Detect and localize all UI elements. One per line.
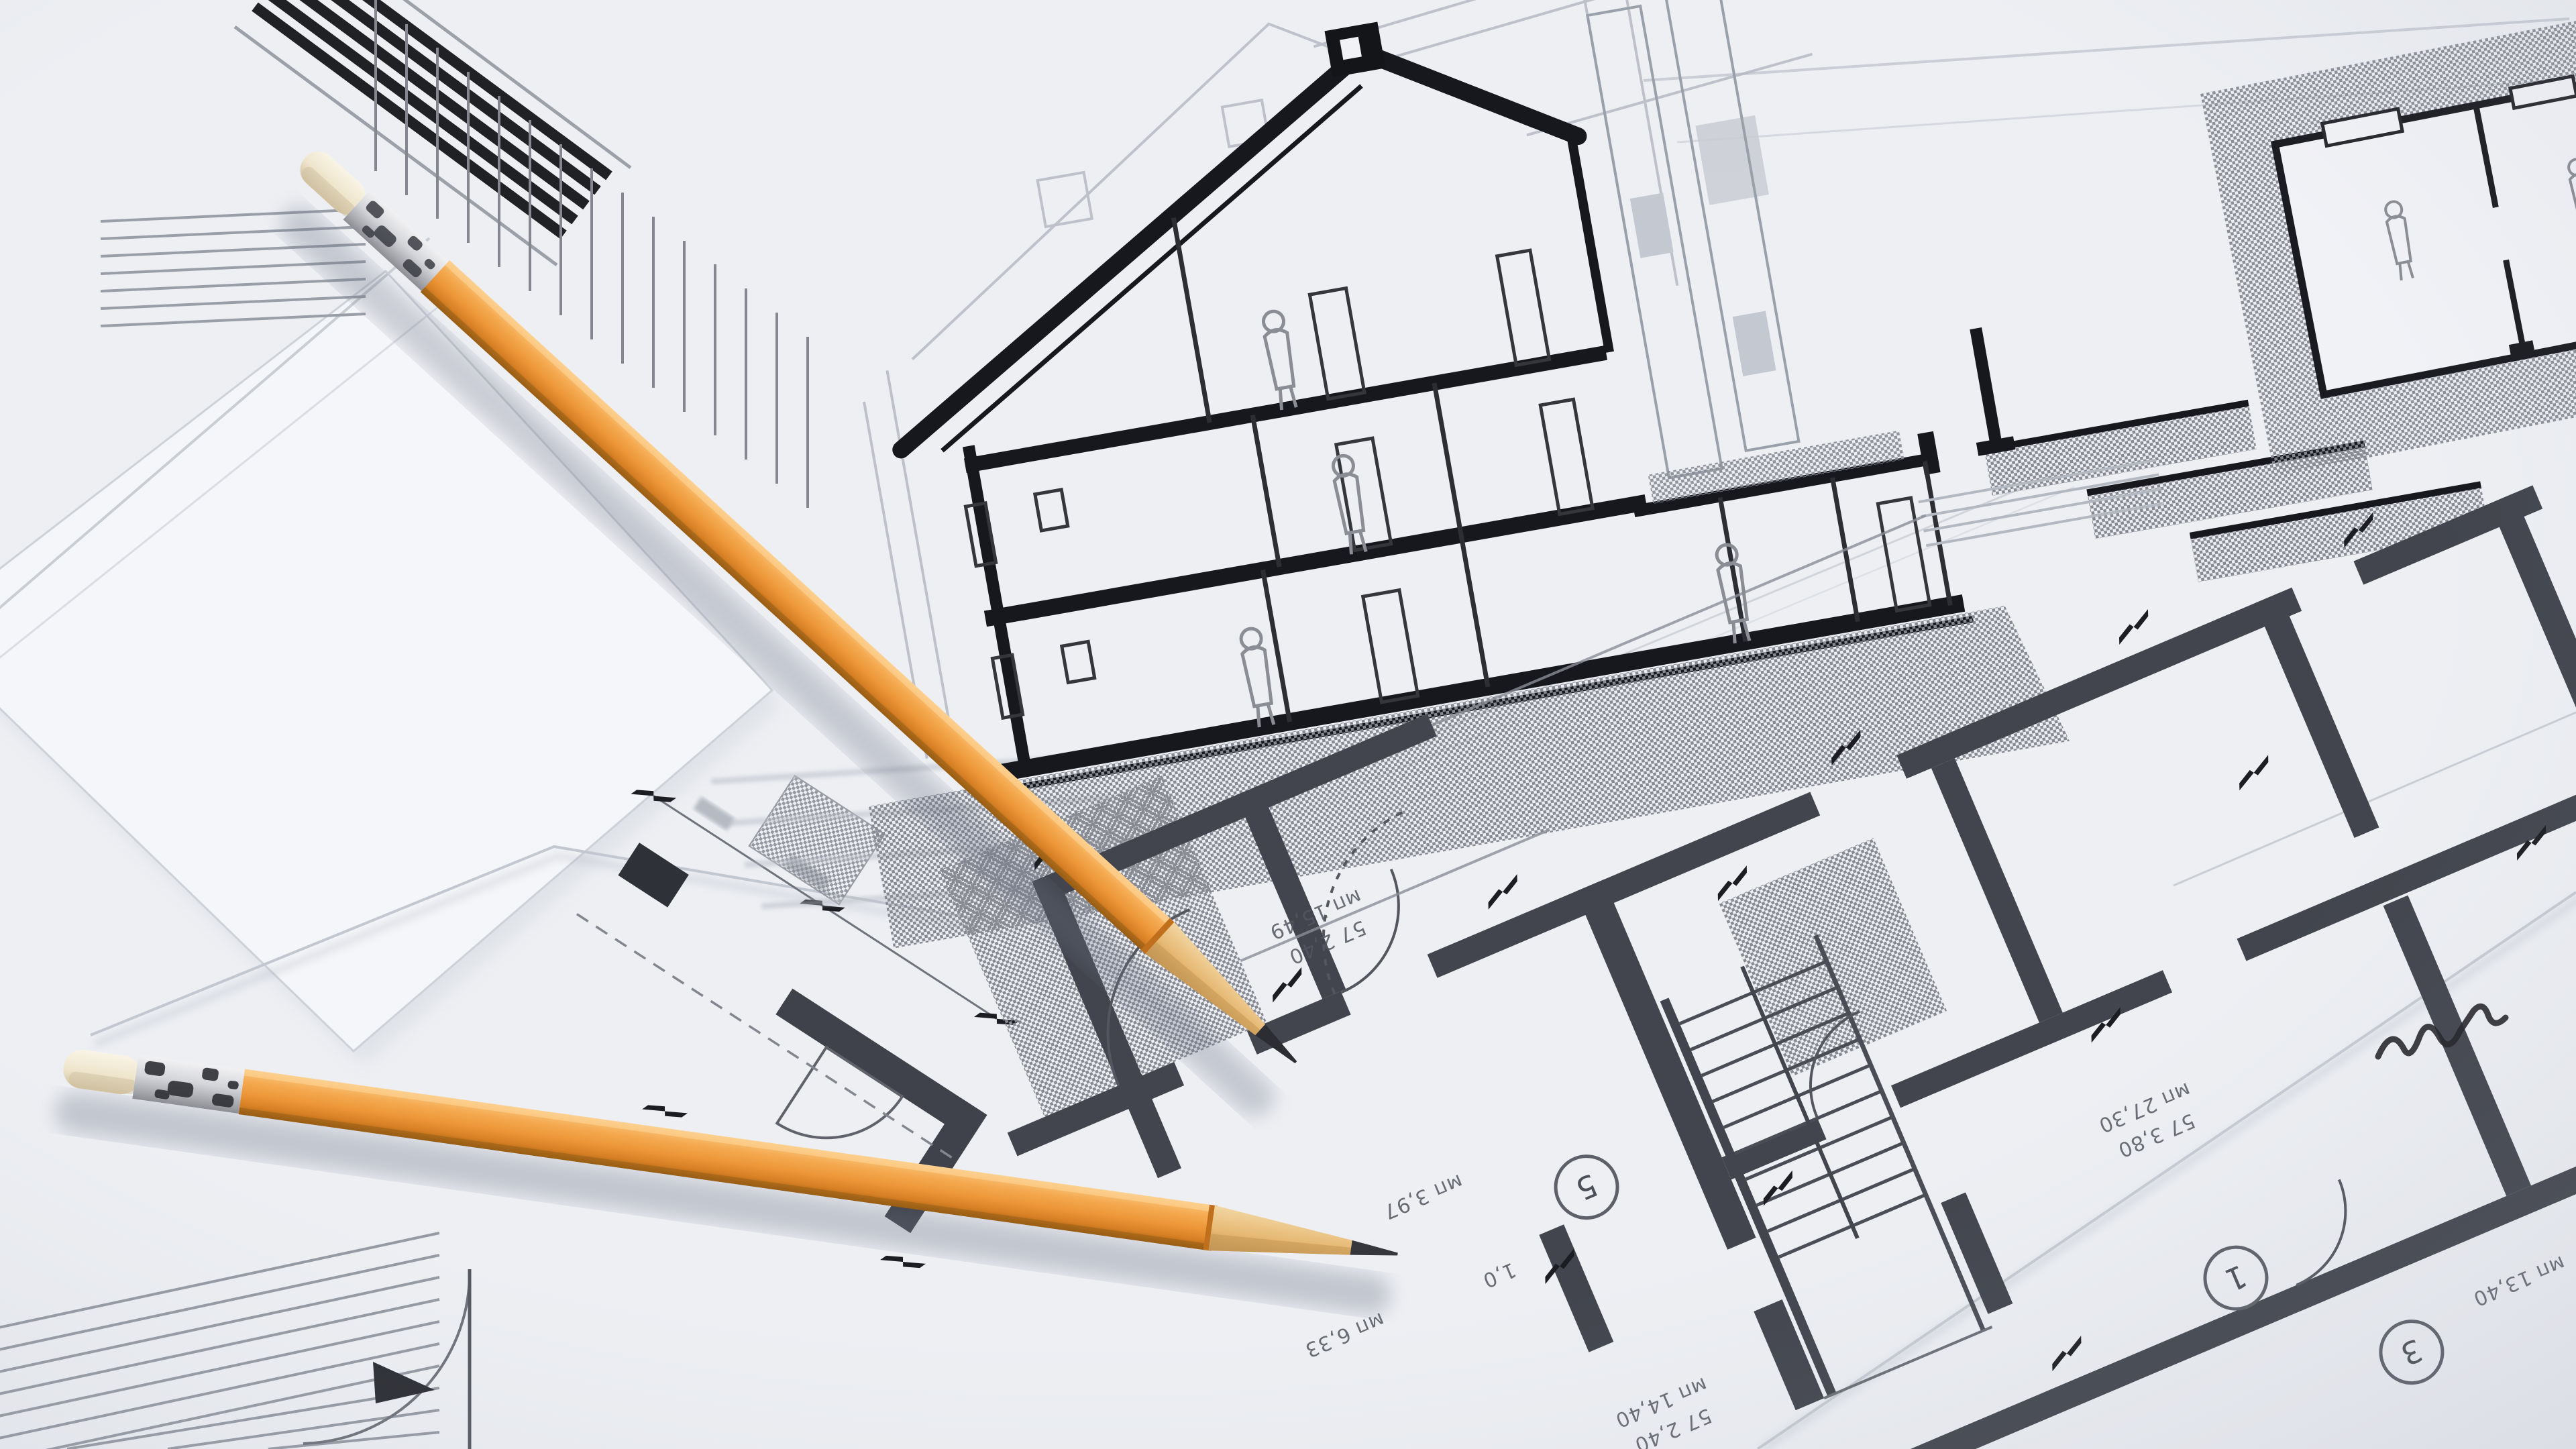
blueprint-scene: 5 1 3 мп 15,49 57 2,40 мп 27,30 57 3,80 … <box>0 0 2576 1449</box>
blueprints-photo: 5 1 3 мп 15,49 57 2,40 мп 27,30 57 3,80 … <box>0 0 2576 1449</box>
